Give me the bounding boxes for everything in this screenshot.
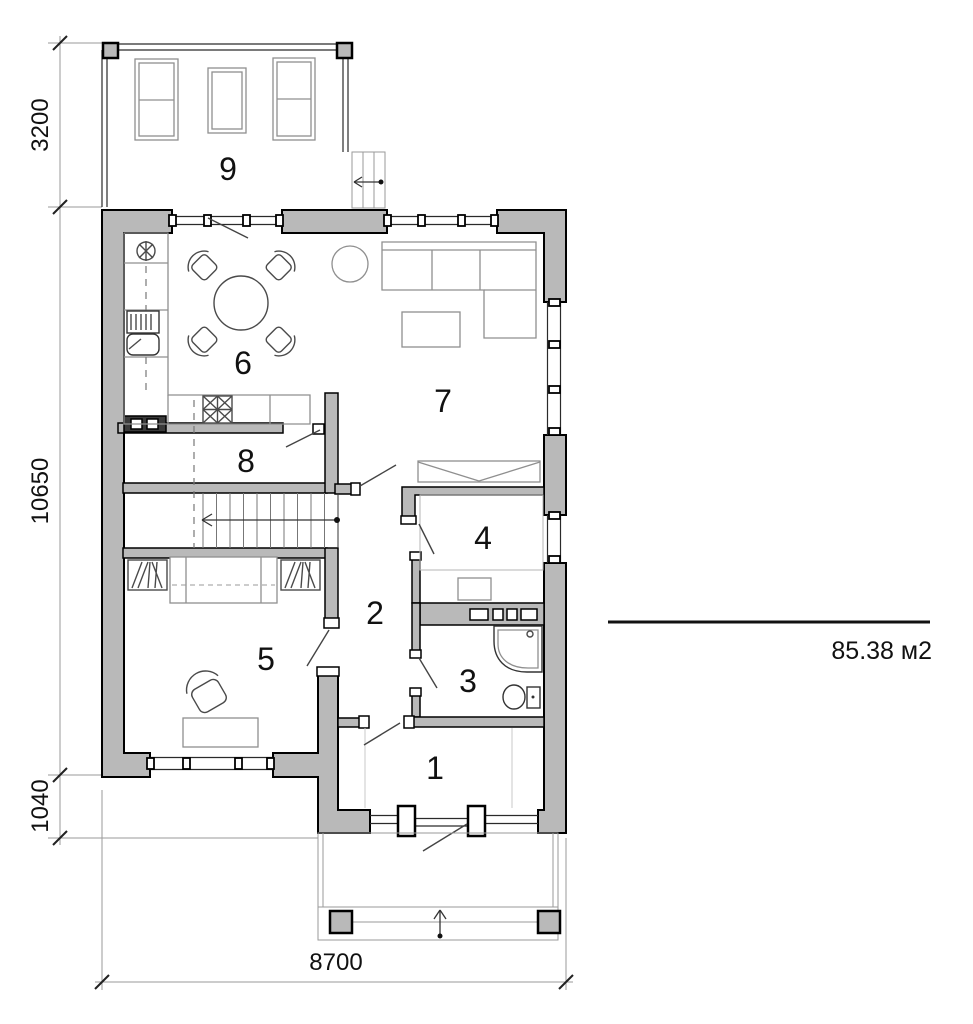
floor-plan-canvas: 3200 10650 1040 8700	[0, 0, 973, 1024]
plant	[332, 246, 368, 282]
room-label-8: 8	[237, 443, 255, 479]
bedroom	[128, 557, 320, 747]
terrace-column	[337, 43, 352, 58]
dim-house-length: 10650	[27, 458, 54, 525]
room5-door-swing	[307, 630, 329, 666]
kitchen-sink	[127, 311, 159, 355]
dim-terrace-depth: 3200	[27, 98, 54, 151]
room-label-9: 9	[219, 151, 237, 187]
dim-house-width: 8700	[309, 949, 362, 976]
bathroom	[494, 626, 542, 709]
toilet	[503, 685, 540, 709]
window-top-left	[169, 215, 283, 226]
desk	[183, 718, 258, 747]
porch-entry-arrow	[434, 910, 446, 939]
room-label-1: 1	[426, 750, 444, 786]
window-right-living	[548, 299, 561, 435]
window-right-room4	[548, 512, 561, 563]
entrance-door-swing	[423, 824, 467, 851]
room-label-3: 3	[459, 663, 477, 699]
terrace-steps	[352, 152, 385, 208]
porch-column	[330, 911, 352, 933]
sofa	[382, 242, 536, 338]
dining-table	[214, 276, 268, 330]
coffee-table	[402, 312, 460, 347]
window-top-right	[384, 215, 498, 226]
room7-door-swing	[360, 465, 396, 486]
entrance-pier	[398, 806, 415, 836]
floor-plan-drawing: 3200 10650 1040 8700	[0, 0, 973, 1024]
terrace-column	[103, 43, 118, 58]
terrace	[102, 43, 385, 208]
area-value: 85.38 м2	[831, 637, 932, 665]
shower	[494, 626, 542, 672]
terrace-armchair-left	[135, 59, 178, 140]
room-label-7: 7	[434, 383, 452, 419]
stairs	[202, 493, 340, 548]
cooktop-fan-icon	[137, 241, 155, 261]
porch-column	[538, 911, 560, 933]
living-room	[332, 242, 540, 482]
room-label-6: 6	[234, 345, 252, 381]
bathroom-door-swing	[419, 658, 437, 688]
terrace-table	[208, 68, 246, 133]
room4-door-swing	[419, 524, 434, 554]
entrance-pier	[468, 806, 485, 836]
room8-door-swing	[286, 430, 320, 447]
area-annotation: 85.38 м2	[608, 622, 932, 665]
desk-chair	[180, 665, 231, 717]
wardrobe-left	[128, 560, 167, 590]
porch	[318, 833, 560, 940]
wardrobe-right	[281, 560, 320, 590]
room-label-4: 4	[474, 520, 492, 556]
stove	[203, 396, 232, 423]
dim-porch-offset: 1040	[27, 779, 54, 832]
bed	[170, 557, 277, 603]
window-bottom-left	[147, 758, 274, 770]
tv-sideboard	[418, 461, 540, 482]
terrace-door-swing	[208, 218, 248, 238]
room-label-5: 5	[257, 641, 275, 677]
terrace-steps-arrow	[354, 177, 384, 187]
dimension-left: 3200 10650 1040	[27, 36, 318, 845]
room-label-2: 2	[366, 595, 384, 631]
terrace-armchair-right	[273, 58, 315, 140]
